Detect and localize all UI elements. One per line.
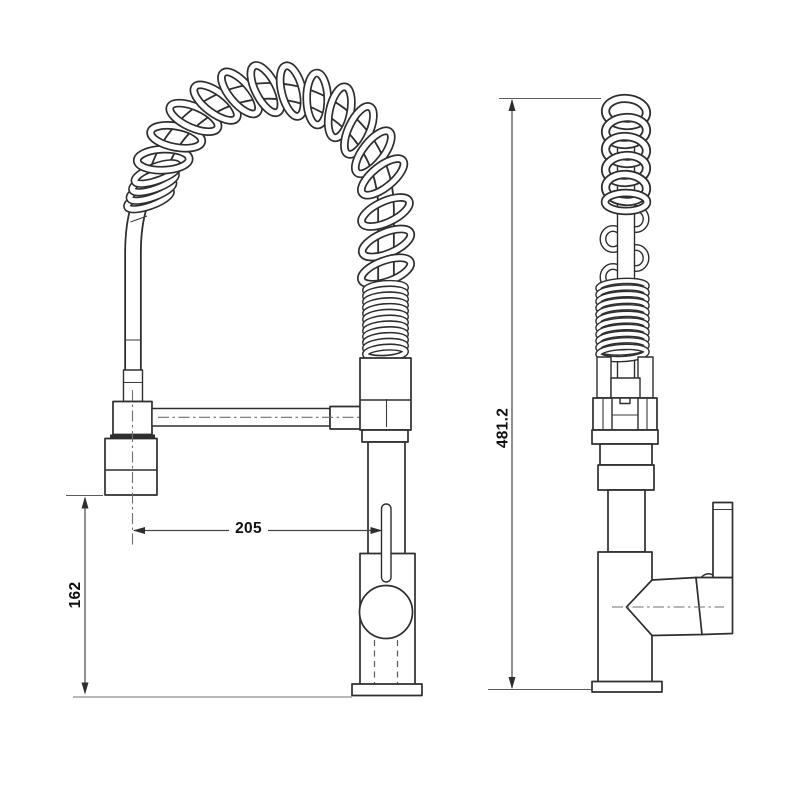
faucet-body-side xyxy=(592,357,658,682)
bracket-notch xyxy=(620,398,630,404)
dim-label-reach: 205 xyxy=(235,520,262,537)
front-view xyxy=(105,61,422,695)
handle-stick-front xyxy=(382,504,392,582)
body-head-block xyxy=(360,358,411,430)
side-view xyxy=(592,97,733,692)
head-post-left xyxy=(597,357,611,398)
dim-label-spray-height: 162 xyxy=(67,582,84,609)
faucet-drawing-canvas: 205 162 481.2 xyxy=(0,0,800,800)
base-flange-front xyxy=(352,684,422,696)
arrowhead-down xyxy=(509,677,516,689)
collar-lower xyxy=(598,465,654,490)
handle-hub xyxy=(696,578,733,635)
spray-head xyxy=(105,370,157,547)
spring-hose-arch xyxy=(125,61,415,378)
technical-drawing-page: 205 162 481.2 xyxy=(0,0,800,800)
dimension-total-height: 481.2 xyxy=(488,99,601,690)
top-coil-stack xyxy=(605,97,648,211)
neck-column xyxy=(608,490,645,552)
dim-label-total-height: 481.2 xyxy=(495,408,512,448)
arrowhead-up xyxy=(82,497,89,509)
collar-upper xyxy=(600,444,652,465)
body-collar xyxy=(362,430,408,442)
arrowhead-up xyxy=(509,99,516,111)
spray-head-body xyxy=(105,439,157,496)
body-end-tight-coils xyxy=(365,282,406,360)
spring-hose-side xyxy=(598,97,647,398)
bottom-tight-coils xyxy=(598,280,647,360)
base-flange-side xyxy=(592,682,662,693)
head-cross-block xyxy=(611,378,640,398)
handle-lever xyxy=(713,503,733,578)
dimension-spout-reach: 205 xyxy=(133,520,383,537)
collar-lip xyxy=(592,430,658,444)
arrowhead-left xyxy=(133,527,145,534)
faucet-body-front xyxy=(352,358,422,696)
arrowhead-down xyxy=(82,683,89,695)
dimension-spray-height: 162 xyxy=(66,496,352,698)
spout-arm xyxy=(152,407,372,430)
handle-ball-joint xyxy=(360,586,413,639)
